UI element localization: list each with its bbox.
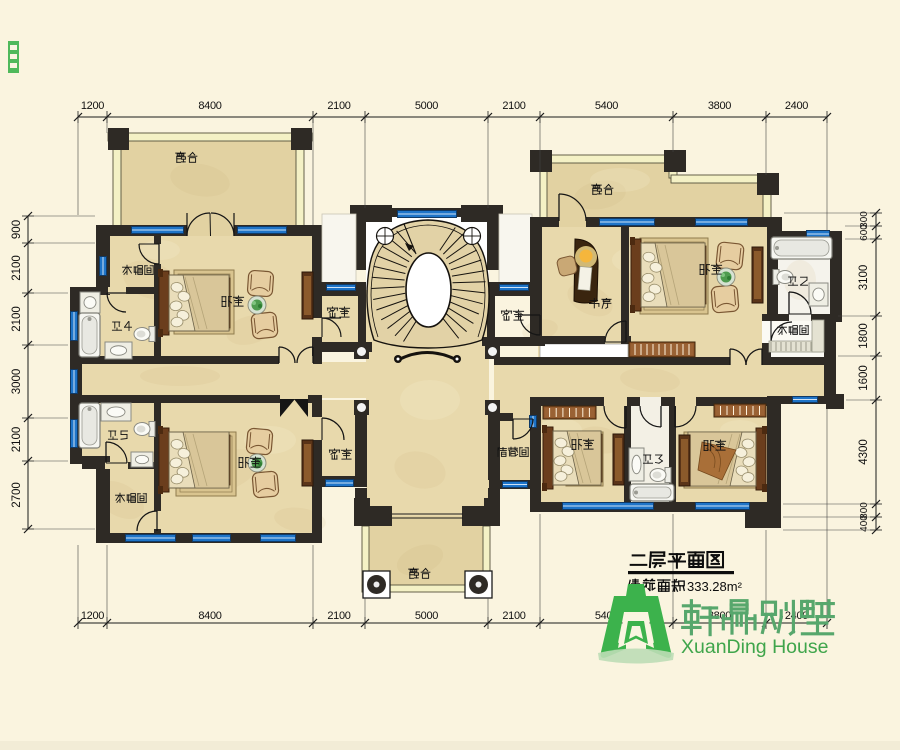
svg-text:5000: 5000	[415, 610, 438, 622]
svg-text:2100: 2100	[502, 610, 525, 622]
svg-text:1600: 1600	[858, 365, 870, 391]
svg-text:3000: 3000	[11, 369, 23, 395]
svg-text:1800: 1800	[858, 323, 870, 349]
svg-text:1200: 1200	[81, 100, 104, 112]
svg-text:2100: 2100	[327, 610, 350, 622]
svg-text:3100: 3100	[858, 265, 870, 291]
svg-text:8400: 8400	[198, 100, 221, 112]
svg-text:2100: 2100	[502, 100, 525, 112]
svg-text:2100: 2100	[11, 255, 23, 281]
svg-text:333.28m²: 333.28m²	[687, 579, 743, 594]
svg-text:2700: 2700	[11, 482, 23, 508]
svg-text:8400: 8400	[198, 610, 221, 622]
svg-text:5400: 5400	[595, 100, 618, 112]
svg-text:XuanDing House: XuanDing House	[681, 636, 828, 658]
svg-text:3800: 3800	[708, 100, 731, 112]
svg-text:900: 900	[11, 220, 23, 239]
svg-text:2100: 2100	[327, 100, 350, 112]
svg-text:5000: 5000	[415, 100, 438, 112]
svg-text:1200: 1200	[81, 610, 104, 622]
svg-text:2400: 2400	[785, 100, 808, 112]
svg-text:2100: 2100	[11, 427, 23, 453]
svg-text:2100: 2100	[11, 306, 23, 332]
svg-text:4300: 4300	[858, 439, 870, 465]
